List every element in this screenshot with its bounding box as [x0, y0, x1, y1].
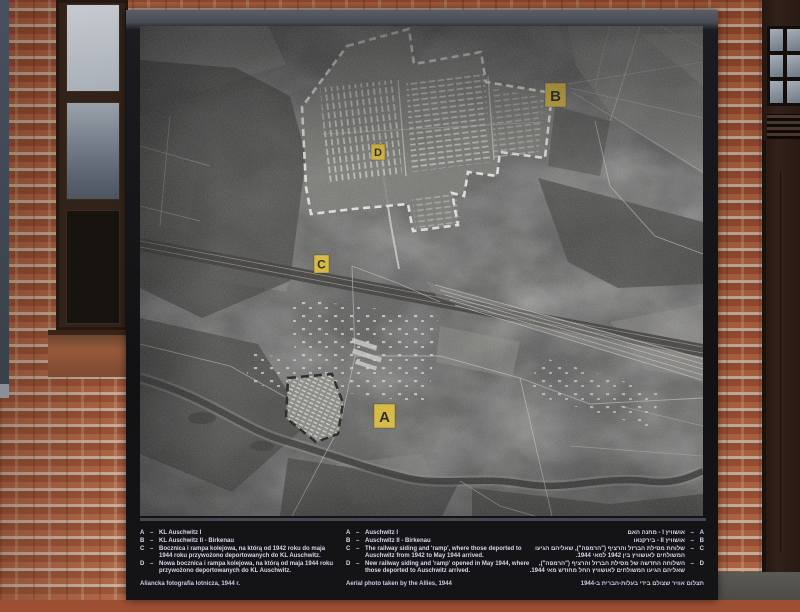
caption-key: A [140, 530, 149, 537]
caption-row: B – Auschwitz II - Birkenau [346, 538, 532, 545]
caption-column-hebrew: A – אושוויץ I - מחנה האם B – אושוויץ II … [522, 530, 704, 587]
caption-text: Nowa bocznica i rampa kolejowa, na którą… [159, 561, 340, 575]
caption-separator: – [686, 546, 694, 560]
caption-column-english: A – Auschwitz I B – Auschwitz II - Birke… [346, 530, 532, 587]
door-glass-pane [770, 81, 783, 103]
window-glass-pane [66, 210, 120, 324]
caption-separator: – [150, 538, 158, 545]
caption-text: אושוויץ I - מחנה האם [522, 530, 685, 537]
info-board: A B C D A – KL Auschwitz I [126, 10, 718, 600]
caption-key: A [695, 530, 704, 537]
caption-key: B [346, 538, 355, 545]
caption-text: אושוויץ II - בירקנאו [522, 538, 685, 545]
caption-separator: – [686, 538, 694, 545]
caption-key: D [140, 561, 149, 575]
caption-separator: – [686, 530, 694, 537]
caption-footer-english: Aerial photo taken by the Allies, 1944 [346, 581, 532, 587]
caption-separator: – [356, 561, 364, 575]
door-frame-edge [762, 140, 766, 576]
door-glass-pane [787, 29, 800, 51]
window-shutter-edge [0, 0, 9, 396]
caption-text: שלוחת מסילת הברזל והרציף ("הרמפה"), שאלי… [522, 546, 685, 560]
caption-row: C – The railway siding and 'ramp', where… [346, 546, 532, 560]
door-glass-pane [787, 55, 800, 77]
caption-footer-hebrew: תצלום אוויר שצולם בידי בעלות-הברית ב-194… [522, 581, 704, 587]
window-sill [48, 330, 130, 377]
door-panel-groove [780, 172, 783, 552]
caption-row: B – KL Auschwitz II - Birkenau [140, 538, 340, 545]
caption-text: The railway siding and 'ramp', where tho… [365, 546, 532, 560]
caption-separator: – [356, 530, 364, 537]
caption-key: B [140, 538, 149, 545]
caption-text: New railway siding and 'ramp' opened in … [365, 561, 532, 575]
caption-footer-polish: Aliancka fotografia lotnicza, 1944 r. [140, 581, 340, 587]
caption-row: C – שלוחת מסילת הברזל והרציף ("הרמפה"), … [522, 546, 704, 560]
aerial-photo-svg: A B C D [140, 26, 703, 516]
caption-key: D [346, 561, 355, 575]
caption-row: A – KL Auschwitz I [140, 530, 340, 537]
caption-text: KL Auschwitz I [159, 530, 340, 537]
door-glass-pane [770, 55, 783, 77]
door-vent-louvers [767, 114, 800, 139]
door-glass-pane [787, 81, 800, 103]
door-glass-pane [770, 29, 783, 51]
caption-row: A – אושוויץ I - מחנה האם [522, 530, 704, 537]
caption-row: D – Nowa bocznica i rampa kolejowa, na k… [140, 561, 340, 575]
door-window-grid [767, 26, 800, 106]
caption-text: Bocznica i rampa kolejowa, na którą od 1… [159, 546, 340, 560]
caption-key: D [695, 561, 704, 575]
caption-row: C – Bocznica i rampa kolejowa, na którą … [140, 546, 340, 560]
caption-key: A [346, 530, 355, 537]
caption-separator: – [356, 538, 364, 545]
caption-text: Auschwitz I [365, 530, 532, 537]
caption-text: KL Auschwitz II - Birkenau [159, 538, 340, 545]
caption-panel: A – KL Auschwitz I B – KL Auschwitz II -… [140, 518, 706, 612]
caption-row: A – Auschwitz I [346, 530, 532, 537]
caption-key: C [140, 546, 149, 560]
caption-separator: – [150, 530, 158, 537]
caption-key: C [346, 546, 355, 560]
caption-separator: – [150, 561, 158, 575]
caption-row: B – אושוויץ II - בירקנאו [522, 538, 704, 545]
caption-text: Auschwitz II - Birkenau [365, 538, 532, 545]
caption-separator: – [150, 546, 158, 560]
ground-strip [716, 572, 800, 600]
window-shutter-hinge [0, 384, 9, 398]
caption-row: D – השלוחה החדשה של מסילת הברזל והרציף (… [522, 561, 704, 575]
caption-separator: – [686, 561, 694, 575]
caption-separator: – [356, 546, 364, 560]
aerial-photo: A B C D [140, 26, 703, 516]
caption-column-polish: A – KL Auschwitz I B – KL Auschwitz II -… [140, 530, 340, 587]
caption-key: C [695, 546, 704, 560]
window-glass-pane [66, 102, 120, 200]
caption-text: השלוחה החדשה של מסילת הברזל והרציף ("הרמ… [522, 561, 685, 575]
window-glass-pane [66, 4, 120, 92]
right-door [762, 0, 800, 576]
caption-key: B [695, 538, 704, 545]
caption-row: D – New railway siding and 'ramp' opened… [346, 561, 532, 575]
left-window [56, 0, 128, 330]
